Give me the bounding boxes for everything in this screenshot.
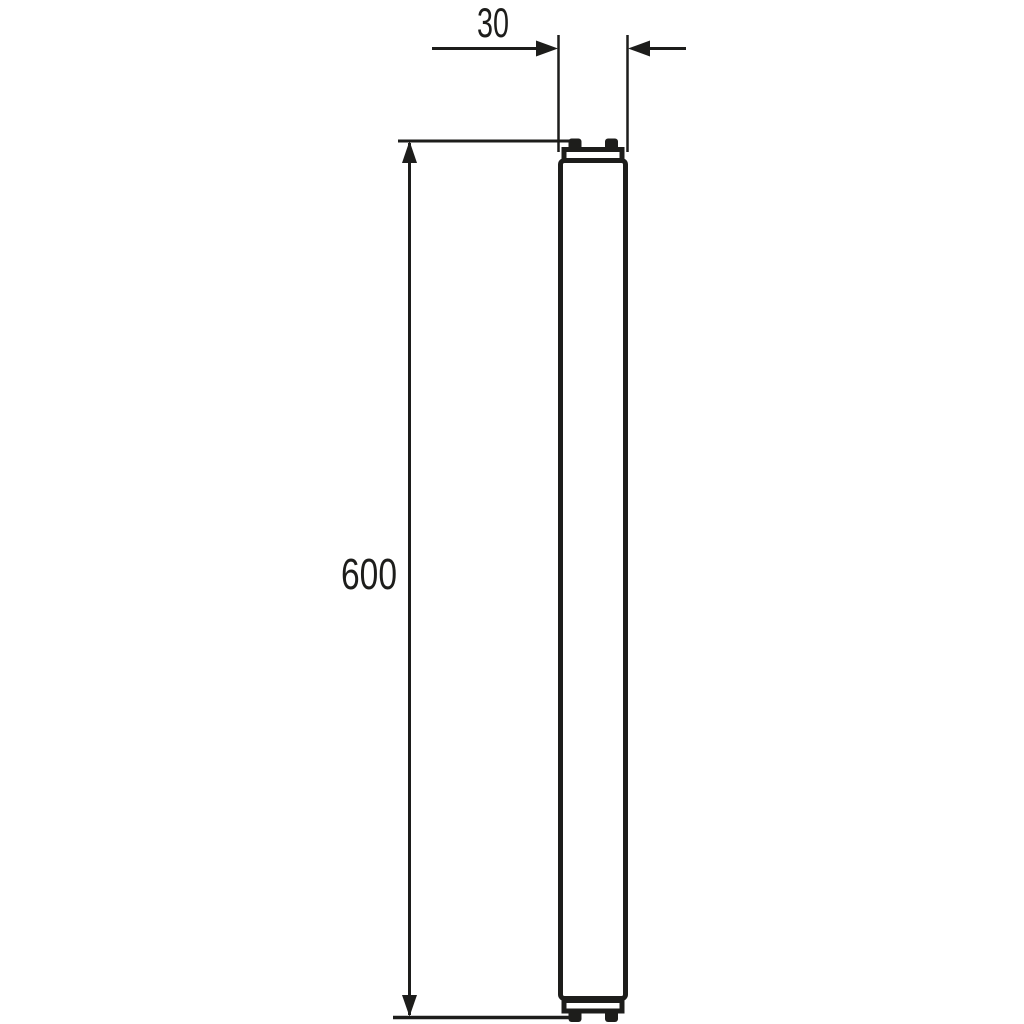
tube-body (561, 161, 626, 999)
length-arrow-down-icon (402, 995, 417, 1017)
width-arrow-left-icon (628, 41, 650, 57)
length-dimension-label: 600 (341, 550, 397, 599)
technical-drawing: 30 600 (0, 0, 1024, 1024)
tube-bottom-cap (564, 1001, 622, 1012)
length-arrow-up-icon (402, 141, 417, 163)
led-tube (561, 139, 626, 1023)
width-dimension (432, 35, 686, 152)
width-arrow-right-icon (536, 41, 558, 57)
width-dimension-label: 30 (477, 0, 509, 46)
drawing-canvas: 30 600 (0, 0, 1024, 1024)
length-dimension (393, 141, 570, 1018)
